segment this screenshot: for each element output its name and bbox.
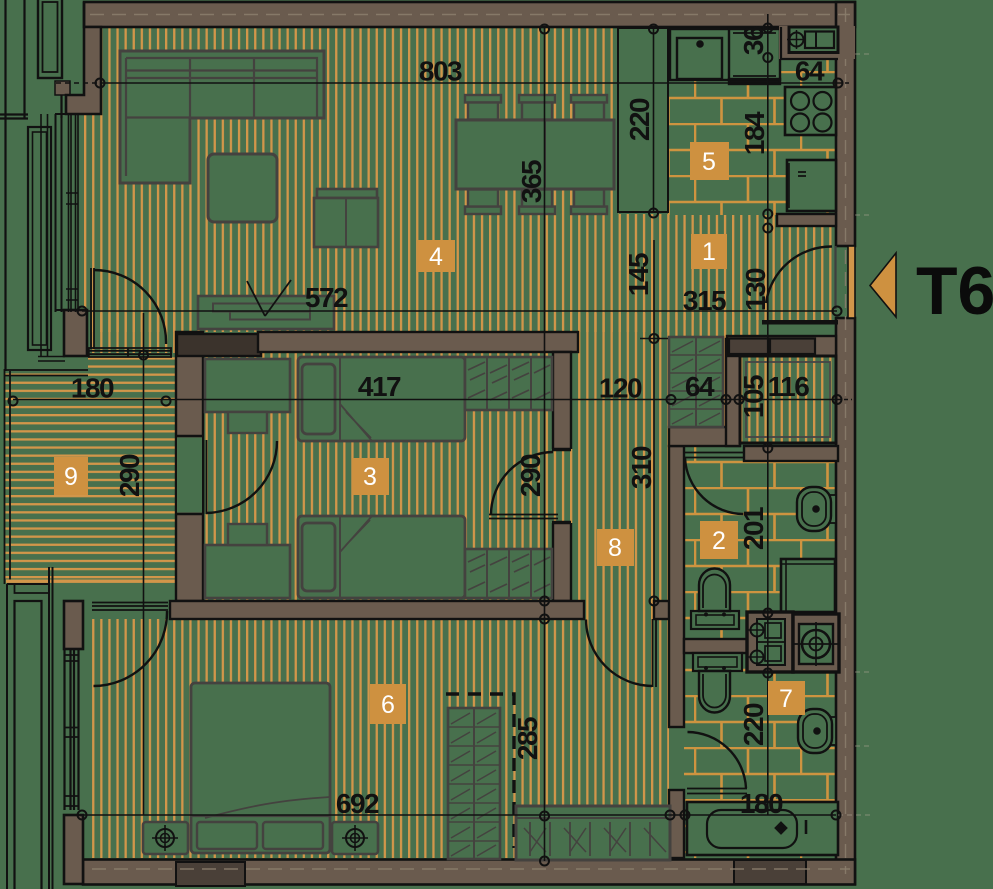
svg-text:310: 310 xyxy=(626,446,657,489)
svg-text:290: 290 xyxy=(515,454,546,497)
svg-text:572: 572 xyxy=(305,282,348,313)
svg-text:9: 9 xyxy=(64,463,78,491)
svg-text:2: 2 xyxy=(712,527,726,555)
svg-text:5: 5 xyxy=(702,148,716,176)
svg-text:4: 4 xyxy=(429,243,443,271)
svg-text:36: 36 xyxy=(738,26,769,55)
svg-text:417: 417 xyxy=(358,371,401,402)
svg-text:285: 285 xyxy=(512,717,543,760)
svg-text:220: 220 xyxy=(624,98,655,141)
svg-text:6: 6 xyxy=(381,691,395,719)
svg-text:201: 201 xyxy=(738,507,769,550)
svg-text:130: 130 xyxy=(740,268,771,311)
svg-text:220: 220 xyxy=(738,703,769,746)
svg-text:180: 180 xyxy=(71,373,114,404)
svg-text:1: 1 xyxy=(702,238,716,266)
svg-text:T6: T6 xyxy=(916,253,993,329)
svg-text:3: 3 xyxy=(363,463,377,491)
svg-text:365: 365 xyxy=(516,160,547,203)
svg-text:64: 64 xyxy=(685,371,715,402)
svg-text:7: 7 xyxy=(779,685,793,713)
svg-text:8: 8 xyxy=(608,534,622,562)
svg-text:64: 64 xyxy=(795,56,825,87)
svg-text:180: 180 xyxy=(740,788,783,819)
svg-text:120: 120 xyxy=(599,373,642,404)
svg-text:184: 184 xyxy=(739,111,770,155)
svg-text:290: 290 xyxy=(114,454,145,497)
svg-text:145: 145 xyxy=(623,253,654,296)
svg-text:105: 105 xyxy=(738,375,769,418)
svg-text:315: 315 xyxy=(683,285,726,316)
svg-text:692: 692 xyxy=(336,788,379,819)
svg-text:116: 116 xyxy=(768,371,810,402)
svg-text:803: 803 xyxy=(419,56,462,87)
